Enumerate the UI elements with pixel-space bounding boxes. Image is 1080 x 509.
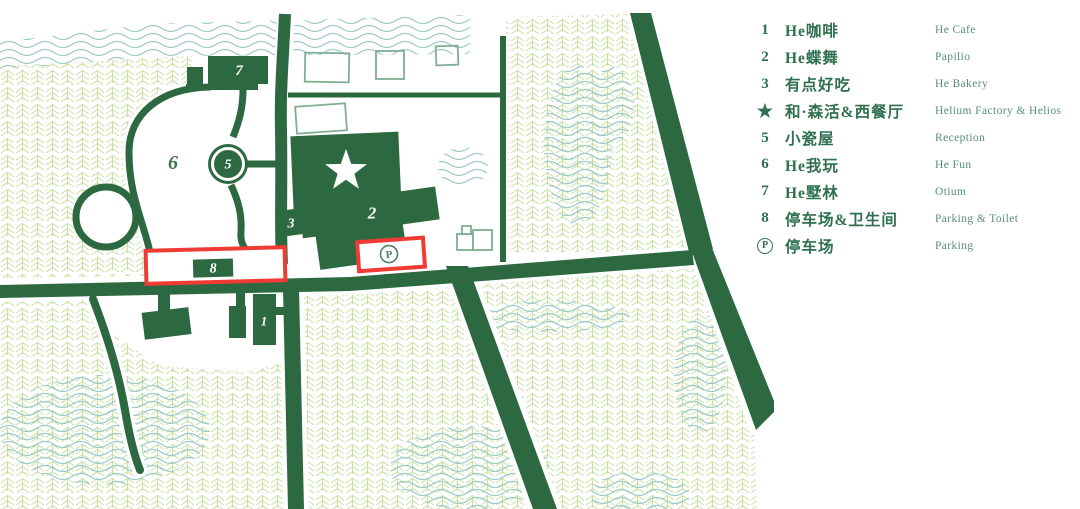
highlight-box-8: 8	[146, 247, 286, 284]
marker-5: 5	[225, 158, 232, 173]
outline-building	[376, 51, 404, 79]
roundabout-5: 5	[208, 144, 248, 184]
legend-item-2: 2He蝶舞Papilio	[752, 44, 1078, 71]
contour-waves	[590, 67, 634, 143]
building-stub	[236, 289, 245, 308]
legend-item-1: 1He咖啡He Cafe	[752, 17, 1078, 44]
legend-item-6: 6He我玩He Fun	[752, 151, 1078, 178]
legend-name-en: He Cafe	[935, 24, 976, 36]
highlight-box-p: P	[357, 238, 425, 272]
legend-name-zh: 有点好吃	[785, 73, 851, 95]
building-stub	[158, 292, 170, 312]
legend-name-en: He Fun	[935, 159, 972, 171]
legend-item-8: 8停车场&卫生间Parking & Toilet	[752, 205, 1078, 232]
legend-item-★: ★和·森活&西餐厅Helium Factory & Helios	[752, 98, 1078, 125]
legend-marker: 2	[752, 49, 778, 66]
building-stub	[275, 307, 287, 315]
parking-circle-icon: P	[752, 237, 778, 254]
legend-item-3: 3有点好吃He Bakery	[752, 71, 1078, 98]
legend-name-zh: 小瓷屋	[785, 127, 835, 149]
legend-name-en: Helium Factory & Helios	[935, 105, 1061, 117]
legend-name-en: He Bakery	[935, 78, 988, 90]
outline-buildings	[295, 46, 458, 134]
building-sw	[142, 307, 192, 340]
site-map-svg: 5 7	[0, 0, 780, 509]
legend-name-zh: He咖啡	[785, 19, 839, 41]
legend-item-P: P停车场Parking	[752, 232, 1078, 259]
marker-3: 3	[287, 217, 295, 232]
pond-waves-small	[438, 147, 488, 187]
outline-building	[462, 226, 471, 234]
legend-marker: 8	[752, 210, 778, 227]
legend-marker: 5	[752, 130, 778, 147]
legend-marker: P	[757, 238, 773, 254]
legend-name-zh: He墅林	[785, 181, 839, 203]
outline-building	[295, 103, 347, 133]
legend-marker: 3	[752, 76, 778, 93]
site-map: 5 7	[0, 0, 780, 509]
legend-name-en: Reception	[935, 132, 985, 144]
legend-name-en: Parking & Toilet	[935, 213, 1018, 225]
legend-name-zh: 停车场	[785, 235, 835, 257]
legend-name-en: Parking	[935, 240, 974, 252]
star-icon: ★	[752, 101, 778, 122]
legend-marker: 1	[752, 22, 778, 39]
marker-2: 2	[367, 204, 377, 223]
marker-p: P	[385, 249, 393, 261]
outline-building	[457, 234, 473, 250]
marker-6: 6	[168, 152, 178, 174]
legend-name-en: Papilio	[935, 51, 970, 63]
outline-house-cluster	[457, 226, 492, 250]
outline-building	[305, 53, 349, 83]
screenshot: 5 7	[0, 0, 1080, 509]
marker-8: 8	[209, 261, 216, 276]
outline-building	[473, 230, 492, 250]
legend-name-zh: He蝶舞	[785, 46, 839, 68]
marker-1: 1	[261, 314, 268, 329]
legend: 1He咖啡He Cafe2He蝶舞Papilio3有点好吃He Bakery★和…	[752, 17, 1078, 259]
legend-name-zh: 和·森活&西餐厅	[785, 100, 904, 122]
legend-item-7: 7He墅林Otium	[752, 178, 1078, 205]
legend-item-5: 5小瓷屋Reception	[752, 125, 1078, 152]
legend-marker: 7	[752, 183, 778, 200]
marker-7: 7	[235, 63, 243, 79]
pond	[76, 187, 136, 247]
legend-name-zh: 停车场&卫生间	[785, 208, 898, 230]
pond-waves	[0, 375, 210, 485]
legend-name-zh: He我玩	[785, 154, 839, 176]
building-7-annex	[187, 67, 203, 84]
legend-marker: 6	[752, 156, 778, 173]
legend-name-en: Otium	[935, 186, 966, 198]
building-s	[229, 306, 246, 338]
